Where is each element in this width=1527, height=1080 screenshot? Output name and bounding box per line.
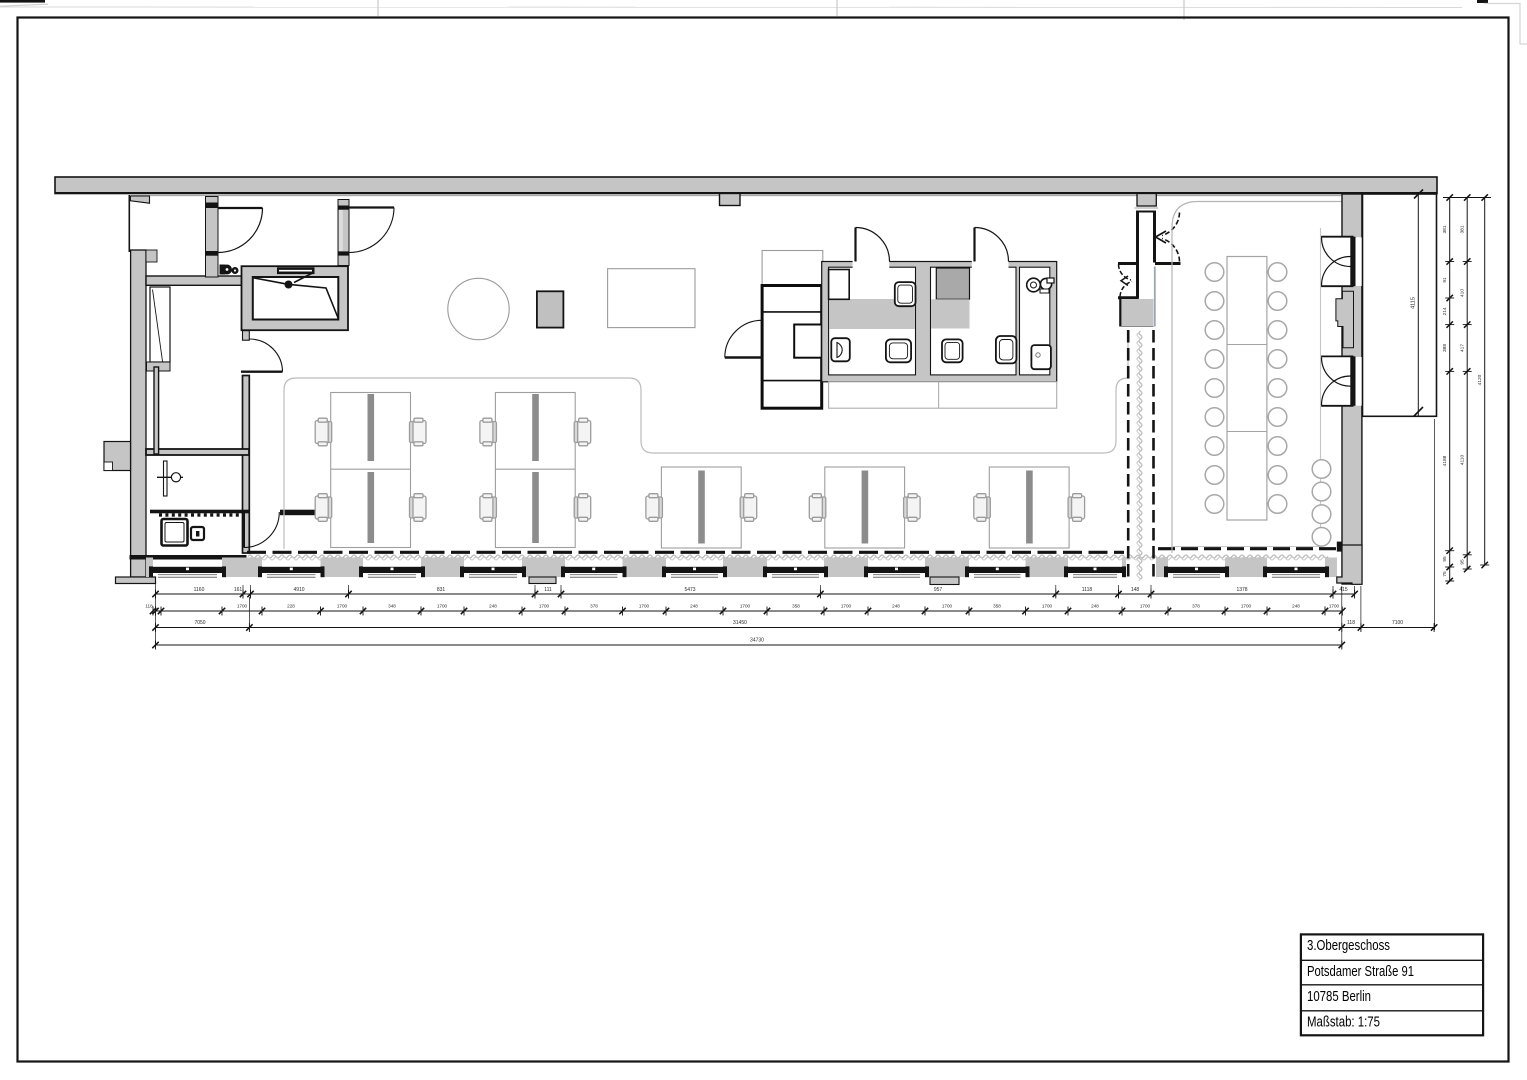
svg-text:248: 248 bbox=[1292, 604, 1300, 609]
svg-text:7100: 7100 bbox=[1392, 620, 1403, 626]
svg-text:1700: 1700 bbox=[639, 604, 650, 609]
svg-text:Maßstab: 1:75: Maßstab: 1:75 bbox=[1307, 1015, 1380, 1031]
svg-text:118: 118 bbox=[1347, 620, 1355, 626]
svg-text:1700: 1700 bbox=[539, 604, 550, 609]
svg-text:381: 381 bbox=[1460, 225, 1466, 233]
svg-text:7050: 7050 bbox=[194, 620, 205, 626]
svg-text:161: 161 bbox=[234, 587, 243, 593]
svg-text:248: 248 bbox=[489, 604, 497, 609]
svg-text:248: 248 bbox=[690, 604, 698, 609]
svg-text:1700: 1700 bbox=[337, 604, 348, 609]
svg-text:95: 95 bbox=[1442, 556, 1448, 562]
svg-text:4120: 4120 bbox=[1477, 374, 1483, 385]
svg-text:381: 381 bbox=[1442, 225, 1448, 233]
svg-text:111: 111 bbox=[544, 587, 552, 593]
svg-text:1700: 1700 bbox=[1140, 604, 1151, 609]
svg-text:378: 378 bbox=[590, 604, 598, 609]
svg-text:34730: 34730 bbox=[750, 638, 764, 644]
svg-text:248: 248 bbox=[1091, 604, 1099, 609]
svg-text:1700: 1700 bbox=[841, 604, 852, 609]
svg-text:95: 95 bbox=[1460, 559, 1466, 565]
svg-text:4910: 4910 bbox=[293, 587, 304, 593]
svg-text:214: 214 bbox=[1442, 307, 1448, 315]
svg-text:1700: 1700 bbox=[1241, 604, 1252, 609]
svg-text:4110: 4110 bbox=[1460, 455, 1466, 466]
svg-text:5473: 5473 bbox=[684, 587, 695, 593]
svg-text:3.Obergeschoss: 3.Obergeschoss bbox=[1307, 938, 1390, 954]
svg-text:358: 358 bbox=[993, 604, 1001, 609]
svg-text:148: 148 bbox=[1131, 587, 1140, 593]
svg-text:1700: 1700 bbox=[1329, 604, 1340, 609]
svg-text:348: 348 bbox=[388, 604, 396, 609]
svg-text:1700: 1700 bbox=[942, 604, 953, 609]
svg-text:1700: 1700 bbox=[740, 604, 751, 609]
svg-text:417: 417 bbox=[1460, 344, 1466, 352]
svg-text:957: 957 bbox=[934, 587, 943, 593]
svg-text:831: 831 bbox=[437, 587, 446, 593]
svg-text:228: 228 bbox=[287, 604, 295, 609]
svg-text:358: 358 bbox=[792, 604, 800, 609]
svg-text:415: 415 bbox=[1339, 587, 1348, 593]
svg-text:10785 Berlin: 10785 Berlin bbox=[1307, 989, 1371, 1005]
svg-text:91: 91 bbox=[1442, 277, 1448, 283]
svg-text:1700: 1700 bbox=[437, 604, 448, 609]
svg-text:388: 388 bbox=[1442, 344, 1448, 352]
svg-text:378: 378 bbox=[1192, 604, 1200, 609]
svg-text:1700: 1700 bbox=[237, 604, 248, 609]
svg-text:31450: 31450 bbox=[733, 620, 747, 626]
svg-text:118: 118 bbox=[145, 604, 153, 609]
svg-text:Potsdamer Straße 91: Potsdamer Straße 91 bbox=[1307, 964, 1414, 980]
svg-text:410: 410 bbox=[1460, 289, 1466, 297]
svg-text:248: 248 bbox=[892, 604, 900, 609]
svg-text:4188: 4188 bbox=[1442, 455, 1448, 466]
svg-text:1118: 1118 bbox=[1082, 587, 1093, 593]
svg-text:1378: 1378 bbox=[1236, 587, 1247, 593]
svg-text:4115: 4115 bbox=[1411, 297, 1417, 309]
svg-text:1160: 1160 bbox=[194, 587, 205, 593]
svg-text:1700: 1700 bbox=[1042, 604, 1053, 609]
svg-text:75: 75 bbox=[1442, 571, 1448, 577]
